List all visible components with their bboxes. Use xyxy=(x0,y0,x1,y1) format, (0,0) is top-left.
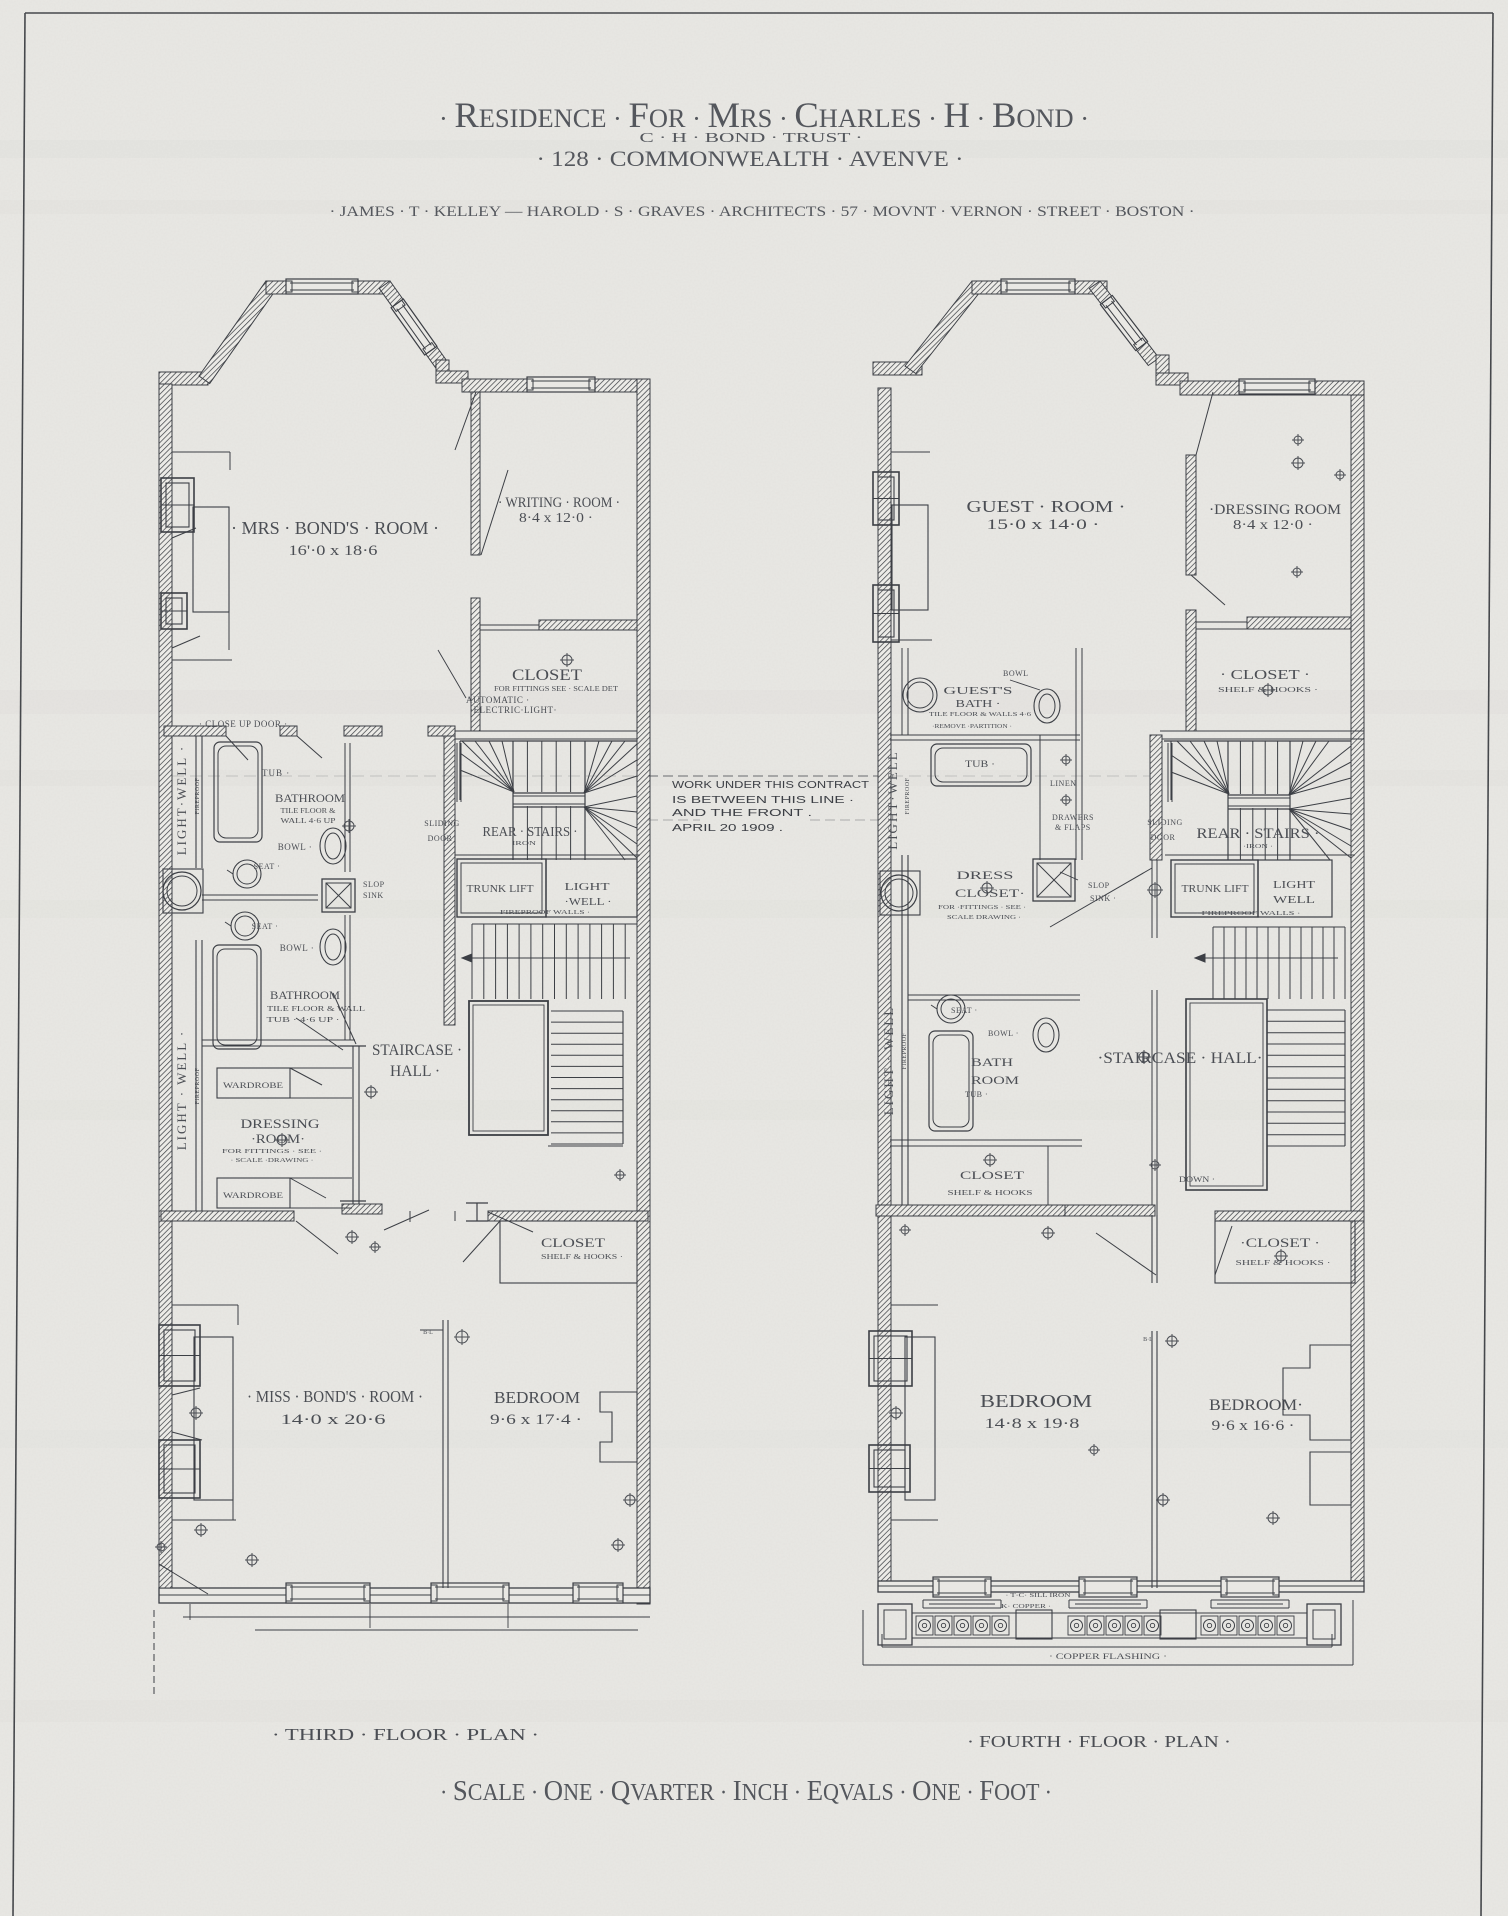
svg-text:FIREPROOF: FIREPROOF xyxy=(195,777,201,814)
svg-text:ROOM: ROOM xyxy=(971,1073,1019,1087)
svg-text:& FLAPS: & FLAPS xyxy=(1055,823,1091,832)
svg-text:TUB ·: TUB · xyxy=(262,768,290,778)
svg-text:·DRESSING ROOM: ·DRESSING ROOM xyxy=(1209,502,1341,518)
svg-text:SLIDING: SLIDING xyxy=(1147,818,1183,827)
svg-text:· CLOSET ·: · CLOSET · xyxy=(1220,667,1310,682)
svg-text:DRAWERS: DRAWERS xyxy=(1052,813,1094,822)
svg-text:FIREPROOF WALLS ·: FIREPROOF WALLS · xyxy=(500,909,590,916)
svg-text:·CLOSET ·: ·CLOSET · xyxy=(1240,1235,1320,1250)
svg-text:· FOURTH · FLOOR · PLAN ·: · FOURTH · FLOOR · PLAN · xyxy=(967,1732,1231,1751)
svg-text:REAR · STAIRS ·: REAR · STAIRS · xyxy=(483,824,578,839)
svg-text:8·4 x 12·0 ·: 8·4 x 12·0 · xyxy=(1233,517,1313,532)
svg-text:AND THE FRONT .: AND THE FRONT . xyxy=(672,808,812,819)
svg-text:REAR · STAIRS ·: REAR · STAIRS · xyxy=(1197,826,1320,842)
svg-text:SHELF & HOOKS: SHELF & HOOKS xyxy=(948,1189,1033,1197)
svg-text:SHELF & HOOKS ·: SHELF & HOOKS · xyxy=(1236,1258,1331,1267)
svg-text:SEAT ·: SEAT · xyxy=(252,922,279,931)
svg-text:BOWL ·: BOWL · xyxy=(278,842,312,852)
svg-text:·IRON ·: ·IRON · xyxy=(1243,843,1273,850)
svg-text:LINEN: LINEN xyxy=(1050,779,1077,788)
svg-text:SLOP: SLOP xyxy=(363,880,385,889)
svg-text:WARDROBE: WARDROBE xyxy=(223,1190,283,1200)
svg-text:SLIDING: SLIDING xyxy=(424,819,460,828)
svg-text:FIREPROOF: FIREPROOF xyxy=(195,1067,201,1104)
svg-text:· SCALE · ONE · QVARTER · INCH: · SCALE · ONE · QVARTER · INCH · EQVALS … xyxy=(440,1775,1052,1807)
svg-text:TRUNK LIFT: TRUNK LIFT xyxy=(467,883,534,895)
svg-text:TUB ·: TUB · xyxy=(965,759,995,769)
svg-text:FIREPROOF: FIREPROOF xyxy=(905,777,911,814)
svg-text:· T·C· SILL IRON: · T·C· SILL IRON xyxy=(1006,1592,1071,1599)
svg-text:TUB · 4·6 UP ·: TUB · 4·6 UP · xyxy=(267,1016,340,1024)
svg-text:DRESSING: DRESSING xyxy=(241,1116,320,1131)
svg-text:SEAT ·: SEAT · xyxy=(254,862,281,871)
svg-text:AUTOMATIC ·: AUTOMATIC · xyxy=(466,695,530,705)
svg-text:B·L: B·L xyxy=(1143,1337,1153,1343)
svg-text:WORK UNDER THIS CONTRACT: WORK UNDER THIS CONTRACT xyxy=(672,780,869,791)
svg-text:LIGHT · WELL ·: LIGHT · WELL · xyxy=(174,1030,189,1151)
svg-text:SLOP: SLOP xyxy=(1088,881,1110,890)
svg-text:WELL: WELL xyxy=(1273,894,1315,906)
svg-text:CLOSET: CLOSET xyxy=(512,667,583,684)
svg-text:· FIREPROOF WALLS ·: · FIREPROOF WALLS · xyxy=(1196,910,1301,917)
svg-text:·REMOVE ·PARTITION ·: ·REMOVE ·PARTITION · xyxy=(932,723,1012,730)
svg-text:BATH ·: BATH · xyxy=(956,698,1001,710)
svg-text:BATH: BATH xyxy=(971,1055,1013,1069)
svg-text:IRON: IRON xyxy=(512,840,536,847)
svg-text:·ELECTRIC·LIGHT·: ·ELECTRIC·LIGHT· xyxy=(470,705,557,715)
svg-text:BOWL ·: BOWL · xyxy=(988,1029,1019,1038)
svg-text:LIGHT · WELL ·: LIGHT · WELL · xyxy=(881,995,896,1116)
svg-text:·ROOM·: ·ROOM· xyxy=(251,1131,305,1146)
svg-text:IS BETWEEN THIS LINE ·: IS BETWEEN THIS LINE · xyxy=(672,795,854,806)
svg-text:STAIRCASE ·: STAIRCASE · xyxy=(372,1042,462,1059)
svg-text:· CLOSE UP DOOR ·: · CLOSE UP DOOR · xyxy=(199,719,288,729)
svg-text:· JAMES · T · KELLEY — HAROLD: · JAMES · T · KELLEY — HAROLD · S · GRAV… xyxy=(330,204,1195,220)
svg-text:LIGHT: LIGHT xyxy=(565,881,610,893)
svg-text:SCALE DRAWING ·: SCALE DRAWING · xyxy=(947,914,1021,921)
svg-text:LIGHT·WELL: LIGHT·WELL xyxy=(885,750,900,849)
svg-text:15·0 x 14·0 ·: 15·0 x 14·0 · xyxy=(987,517,1100,533)
svg-text:· COPPER FLASHING ·: · COPPER FLASHING · xyxy=(1049,1652,1167,1661)
svg-text:K· COPPER ·: K· COPPER · xyxy=(1001,1603,1051,1610)
svg-text:·WELL ·: ·WELL · xyxy=(565,896,612,908)
svg-text:BEDROOM: BEDROOM xyxy=(980,1391,1093,1411)
svg-text:WALL 4·6 UP: WALL 4·6 UP xyxy=(281,817,336,825)
svg-text:DOOR: DOOR xyxy=(1151,833,1176,842)
svg-text:LIGHT: LIGHT xyxy=(1273,879,1315,891)
svg-text:HALL ·: HALL · xyxy=(390,1063,440,1080)
svg-text:· WRITING · ROOM ·: · WRITING · ROOM · xyxy=(498,495,620,511)
svg-text:16'·0 x 18·6: 16'·0 x 18·6 xyxy=(289,543,378,559)
svg-text:CLOSET·: CLOSET· xyxy=(955,886,1025,900)
svg-text:8·4 x 12·0 ·: 8·4 x 12·0 · xyxy=(519,510,593,525)
svg-text:9·6 x 16·6 ·: 9·6 x 16·6 · xyxy=(1212,1418,1295,1434)
svg-text:C · H · BOND · TRUST ·: C · H · BOND · TRUST · xyxy=(640,130,863,145)
svg-text:FIREPROOF: FIREPROOF xyxy=(902,1032,908,1069)
svg-text:·STAIRCASE · HALL·: ·STAIRCASE · HALL· xyxy=(1098,1050,1263,1067)
svg-text:· 128 · COMMONWEALTH · AVENVE: · 128 · COMMONWEALTH · AVENVE · xyxy=(537,146,964,171)
svg-text:APRIL 20 1909 .: APRIL 20 1909 . xyxy=(672,823,783,834)
svg-text:CLOSET: CLOSET xyxy=(541,1235,605,1250)
svg-text:TILE FLOOR & WALLS 4·6: TILE FLOOR & WALLS 4·6 xyxy=(929,711,1032,718)
svg-text:BEDROOM·: BEDROOM· xyxy=(1209,1397,1303,1414)
svg-text:DOWN ·: DOWN · xyxy=(1179,1174,1215,1184)
svg-text:14·0 x 20·6: 14·0 x 20·6 xyxy=(281,1412,386,1428)
svg-text:SEAT ·: SEAT · xyxy=(951,1006,978,1015)
svg-text:· MISS · BOND'S · ROOM ·: · MISS · BOND'S · ROOM · xyxy=(247,1387,423,1406)
svg-text:FOR FITTINGS SEE · SCALE DET: FOR FITTINGS SEE · SCALE DET xyxy=(494,685,619,693)
svg-text:9·6 x 17·4 ·: 9·6 x 17·4 · xyxy=(490,1412,582,1428)
svg-text:SINK: SINK xyxy=(363,891,384,900)
svg-text:SHELF & HOOKS ·: SHELF & HOOKS · xyxy=(541,1253,623,1261)
svg-text:TUB ·: TUB · xyxy=(965,1090,988,1099)
svg-text:BOWL: BOWL xyxy=(1003,669,1029,678)
svg-text:· SCALE ·DRAWING ·: · SCALE ·DRAWING · xyxy=(231,1157,314,1164)
svg-text:CLOSET: CLOSET xyxy=(960,1168,1025,1182)
svg-text:LIGHT·WELL ·: LIGHT·WELL · xyxy=(174,745,189,856)
svg-text:DRESS: DRESS xyxy=(957,868,1014,882)
svg-text:B·L: B·L xyxy=(423,1330,433,1336)
svg-text:BOWL ·: BOWL · xyxy=(280,943,314,953)
svg-text:TILE FLOOR & WALL: TILE FLOOR & WALL xyxy=(267,1005,365,1013)
svg-text:BATHROOM: BATHROOM xyxy=(275,791,345,805)
svg-text:GUEST'S: GUEST'S xyxy=(944,685,1013,697)
svg-text:GUEST · ROOM ·: GUEST · ROOM · xyxy=(967,497,1126,516)
svg-text:TILE FLOOR &: TILE FLOOR & xyxy=(281,807,337,815)
svg-text:TRUNK LIFT: TRUNK LIFT xyxy=(1182,883,1249,895)
svg-text:SINK ·: SINK · xyxy=(1090,894,1116,903)
svg-text:· MRS · BOND'S · ROOM ·: · MRS · BOND'S · ROOM · xyxy=(231,518,439,538)
svg-text:BEDROOM: BEDROOM xyxy=(494,1388,580,1407)
svg-text:DOOR: DOOR xyxy=(428,834,453,843)
svg-text:· THIRD · FLOOR · PLAN ·: · THIRD · FLOOR · PLAN · xyxy=(272,1725,539,1744)
svg-text:FOR FITTINGS · SEE ·: FOR FITTINGS · SEE · xyxy=(222,1148,322,1155)
svg-text:WARDROBE: WARDROBE xyxy=(223,1080,283,1090)
svg-text:BATHROOM: BATHROOM xyxy=(270,988,340,1002)
svg-text:SHELF & HOOKS ·: SHELF & HOOKS · xyxy=(1218,685,1318,694)
svg-text:FOR ·FITTINGS · SEE ·: FOR ·FITTINGS · SEE · xyxy=(938,904,1026,911)
svg-text:14·8 x 19·8: 14·8 x 19·8 xyxy=(985,1416,1080,1432)
